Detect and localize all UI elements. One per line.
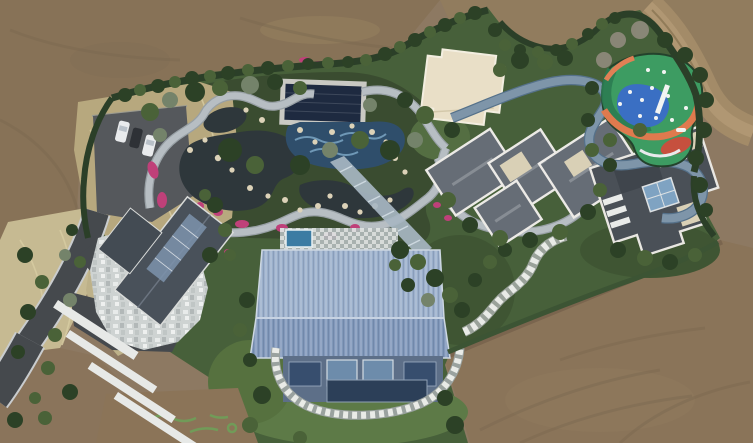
facade-panel-left	[289, 362, 321, 386]
plunge-pool	[286, 230, 312, 247]
facade-window-main	[327, 380, 427, 402]
aerial-photo-canvas	[0, 0, 753, 443]
parking-area	[93, 106, 193, 222]
aerial-photo	[0, 0, 753, 443]
